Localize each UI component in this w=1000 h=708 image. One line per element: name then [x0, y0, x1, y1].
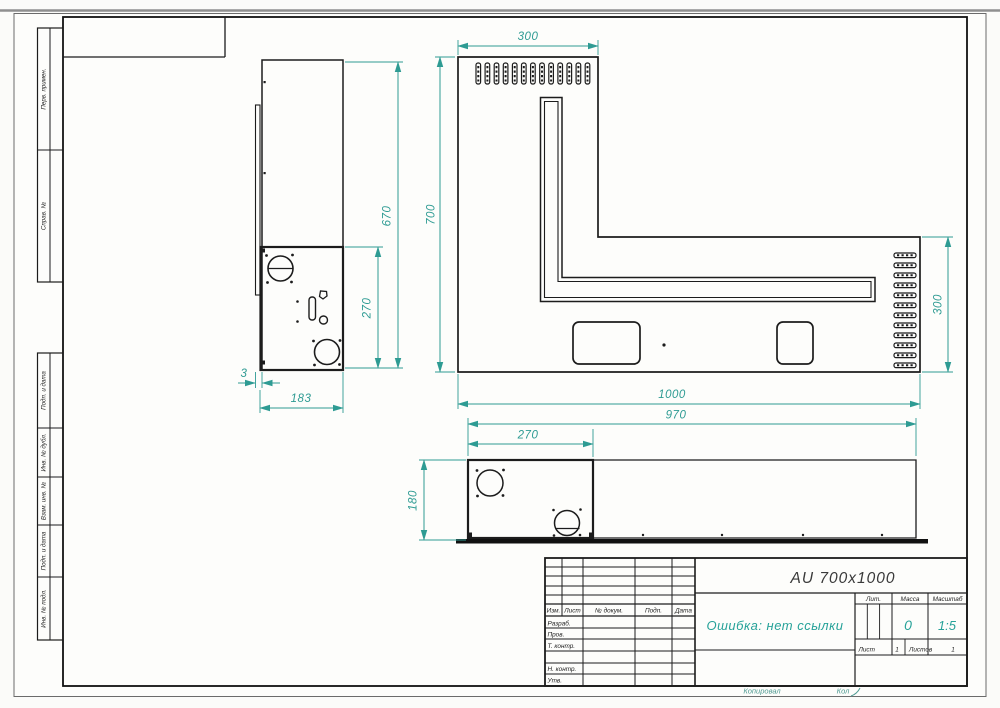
- mass-label: Масса: [901, 596, 920, 603]
- base-flange: [456, 539, 928, 544]
- stamp-sprav-no: Справ. №: [41, 202, 48, 230]
- sheets-value: 1: [951, 647, 955, 654]
- col-podp: Подп.: [645, 607, 662, 615]
- dim-front-height: 180: [408, 490, 420, 511]
- copied-label: Копировал: [743, 687, 781, 696]
- cad-drawing: Перв. примен. Справ. № Подп. и дата Инв.…: [0, 0, 1000, 708]
- dim-plan-top-width: 300: [518, 31, 539, 43]
- sheet-outer-border: [14, 14, 986, 697]
- stamp-vzam-inv: Взам. инв. №: [41, 482, 48, 521]
- stamp-perv-primen: Перв. примен.: [41, 68, 48, 109]
- row-t-kontr: Т. контр.: [548, 643, 576, 650]
- dim-side-total-height: 670: [382, 206, 394, 227]
- sheet-value: 1: [895, 647, 899, 654]
- mass-value: 0: [904, 617, 912, 633]
- dim-side-lower-height: 270: [362, 298, 374, 320]
- stamp-podp-data-1: Подп. и дата: [41, 371, 48, 410]
- dim-plan-total-width: 1000: [658, 389, 686, 401]
- lit-label: Лит.: [865, 596, 881, 603]
- format-label: Кол: [837, 687, 850, 696]
- row-prov: Пров.: [548, 632, 565, 639]
- stamp-inv-dubl: Инв. № дубл.: [41, 433, 48, 471]
- dim-plan-right-height: 300: [933, 294, 945, 315]
- row-utv: Утв.: [547, 678, 563, 685]
- pilot-hole: [662, 343, 665, 346]
- stamp-podp-data-2: Подп. и дата: [41, 531, 48, 570]
- doc-code: AU 700x1000: [790, 570, 896, 587]
- dim-side-thickness: 3: [241, 368, 248, 380]
- drawing-canvas: Перв. примен. Справ. № Подп. и дата Инв.…: [0, 0, 1000, 708]
- scale-label: Масштаб: [933, 595, 963, 603]
- col-data: Дата: [674, 608, 692, 615]
- dim-side-depth: 183: [291, 393, 312, 405]
- sheet-label: Лист: [858, 647, 876, 654]
- sheets-label: Листов: [908, 647, 933, 654]
- stamp-inv-podl: Инв. № подл.: [41, 589, 48, 627]
- col-list: Лист: [563, 608, 581, 615]
- dim-front-box-width: 270: [517, 430, 539, 442]
- dim-plan-left-height: 700: [426, 204, 438, 225]
- row-razrab: Разраб.: [548, 620, 571, 628]
- doc-name: Ошибка: нет ссылки: [707, 618, 844, 633]
- dim-plan-body-width: 970: [666, 410, 687, 422]
- col-izm: Изм.: [547, 608, 561, 615]
- scale-value: 1:5: [938, 618, 957, 633]
- row-n-kontr: Н. контр.: [548, 666, 577, 673]
- col-dokum: № докум.: [595, 607, 623, 615]
